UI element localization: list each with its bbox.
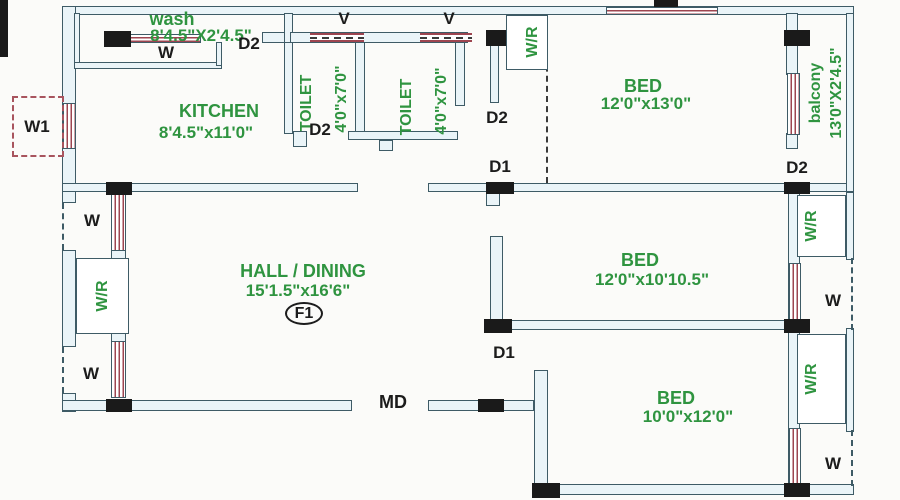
- ventilator-toilet2: [420, 33, 472, 42]
- room-label-toilet1: TOILET: [297, 48, 317, 158]
- main-door-label: MD: [368, 393, 418, 412]
- room-dims-kitchen: 8'4.5"x11'0": [126, 123, 286, 142]
- door-label-d2-balcony: D2: [775, 158, 819, 177]
- wall-toilet-middle: [355, 42, 365, 140]
- room-label-toilet2: TOILET: [397, 52, 417, 162]
- room-dims-balcony: 13'0"X2'4.5": [827, 38, 847, 148]
- room-label-bed2: BED: [590, 251, 690, 270]
- room-label-balcony: balcony: [806, 48, 826, 138]
- wall-balcony-divider-lower: [786, 133, 798, 149]
- room-label-hall: HALL / DINING: [218, 262, 388, 281]
- wardrobe-label-left: W/R: [93, 266, 113, 326]
- wall-left-dashed-2: [62, 347, 64, 393]
- door-label-d2-toilet2: D2: [475, 108, 519, 127]
- wall-wash-step-vertical: [74, 13, 80, 68]
- wardrobe-label-corridor: W/R: [523, 15, 543, 69]
- room-dims-hall: 15'1.5"x16'6": [218, 281, 378, 300]
- door-label-d2-toilet1: D2: [298, 120, 342, 139]
- wall-right-outer-upper: [846, 192, 854, 260]
- wall-wash-step-horizontal: [74, 62, 222, 69]
- window-label-bed2: W: [811, 291, 855, 310]
- cropped-north-mark: [654, 0, 678, 7]
- window-left-hall-lower: [111, 340, 126, 398]
- window-label-bed3: W: [811, 454, 855, 473]
- wall-bed1-bottom: [510, 183, 790, 192]
- door-label-d1-bed3: D1: [482, 343, 526, 362]
- pier-bed2-right: [784, 319, 810, 333]
- window-label-left-upper: W: [70, 211, 114, 230]
- jamb-toilets-bottom: [379, 140, 393, 151]
- window-bed2: [789, 263, 801, 322]
- door-label-d1-bed1: D1: [478, 157, 522, 176]
- window-w1: [63, 103, 76, 149]
- wardrobe-label-bed3: W/R: [802, 349, 822, 409]
- room-label-kitchen: KITCHEN: [144, 102, 294, 121]
- pier-entry: [478, 399, 504, 412]
- flat-number-stamp: F1: [285, 302, 323, 325]
- window-balcony: [787, 73, 800, 135]
- pier-bottom-right: [784, 483, 810, 497]
- wall-right-outer-mid: [846, 328, 854, 432]
- scan-edge-bar: [0, 0, 8, 57]
- window-top-bed1: [606, 7, 718, 15]
- wall-corridor-left: [490, 45, 499, 103]
- wall-left-dashed-1: [62, 203, 64, 250]
- floor-plan: wash 8'4.5"X2'4.5" KITCHEN 8'4.5"x11'0" …: [0, 0, 900, 500]
- pier-balcony-top: [784, 30, 810, 46]
- wall-left-mid: [62, 250, 76, 347]
- wardrobe-label-bed2: W/R: [802, 196, 822, 256]
- room-dims-bed3: 10'0"x12'0": [608, 407, 768, 426]
- wall-mid-left-strip: [62, 183, 110, 192]
- wall-corridor-bottom: [428, 183, 490, 192]
- pier-left-mid: [106, 182, 132, 195]
- wall-bed2-bottom: [503, 320, 790, 330]
- ventilator-toilet1: [310, 33, 364, 42]
- window-label-left-lower: W: [69, 364, 113, 383]
- room-label-bed3: BED: [626, 389, 726, 408]
- vent-label-toilet1: V: [322, 9, 366, 28]
- pier-bed2-left: [484, 319, 512, 333]
- wall-bed3-left: [534, 370, 548, 490]
- window-bed3: [789, 428, 801, 486]
- wall-toilet2-right: [455, 42, 465, 106]
- pier-mid-center: [486, 182, 514, 194]
- window-label-wash: W: [144, 43, 188, 62]
- room-dims-bed2: 12'0"x10'10.5": [562, 270, 742, 289]
- room-dims-toilet2: 4'0"x7'0": [432, 51, 452, 151]
- wall-right-outer-balcony: [846, 13, 854, 192]
- wall-kitchen-bottom: [110, 183, 358, 192]
- door-label-d2-wash: D2: [227, 34, 271, 53]
- vent-label-toilet2: V: [427, 9, 471, 28]
- pier-bottom-left: [532, 483, 560, 498]
- wall-wash-step-jamb: [216, 42, 222, 66]
- room-dims-bed1: 12'0"x13'0": [571, 94, 721, 113]
- jamb-bed1-door: [486, 192, 500, 206]
- pier-mid-right: [784, 182, 810, 194]
- window-label-w1: W1: [15, 117, 59, 136]
- wall-bed2-left: [490, 236, 503, 324]
- pier-hall-left: [106, 399, 132, 412]
